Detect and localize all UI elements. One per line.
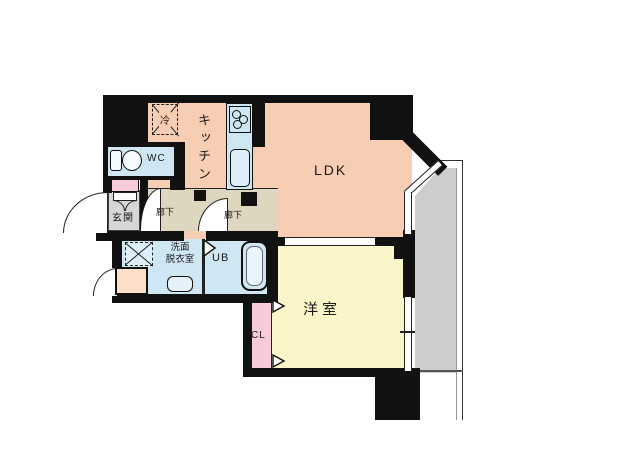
wall bbox=[112, 231, 184, 241]
washroom-label-line2: 脱衣室 bbox=[154, 254, 206, 266]
sliding-door-opening bbox=[285, 237, 375, 246]
washbasin-icon bbox=[167, 276, 193, 292]
window-tick bbox=[400, 331, 415, 333]
western-room-label: 洋室 bbox=[303, 298, 341, 319]
shoe-cabinet bbox=[111, 179, 139, 192]
hallway-label: 廊下 bbox=[156, 205, 174, 218]
wall bbox=[103, 95, 148, 147]
stove-icon bbox=[229, 106, 251, 133]
ldk-window bbox=[404, 192, 412, 234]
toilet-bowl-icon bbox=[122, 150, 142, 171]
washroom-label-line1: 洗面 bbox=[154, 242, 206, 254]
folding-door-icon bbox=[272, 299, 286, 313]
bathtub-icon bbox=[241, 241, 268, 291]
bathtub-inner bbox=[246, 246, 263, 286]
hallway-label: 廊下 bbox=[224, 208, 242, 221]
wall-door-stub bbox=[241, 192, 257, 206]
washroom-label: 洗面 脱衣室 bbox=[154, 242, 206, 266]
refrigerator-box: 冷 bbox=[152, 104, 178, 135]
closet-label: CL bbox=[251, 330, 266, 341]
wall bbox=[375, 237, 404, 246]
storage-box bbox=[115, 267, 148, 295]
refrigerator-label-wrap: 冷 bbox=[153, 105, 177, 134]
balcony-railing bbox=[438, 160, 463, 420]
unit-bath-label: UB bbox=[212, 252, 229, 264]
entrance-label: 玄関 bbox=[112, 209, 134, 224]
sink-icon bbox=[230, 149, 250, 187]
floor-plan: 冷 LDK キッチン WC 玄関 廊下 廊下 洗面 脱衣室 bbox=[0, 0, 640, 452]
wc-label: WC bbox=[147, 153, 166, 164]
toilet-tank-icon bbox=[110, 150, 122, 171]
washing-machine-pan-icon bbox=[125, 242, 153, 266]
wall bbox=[375, 373, 420, 420]
folding-door-icon bbox=[272, 354, 286, 368]
front-door-arc bbox=[63, 192, 108, 233]
x-line bbox=[126, 243, 154, 266]
western-room-window bbox=[404, 297, 412, 371]
wall bbox=[112, 237, 122, 268]
wall bbox=[112, 294, 278, 303]
burner-icon bbox=[233, 120, 242, 129]
kitchen-label: キッチン bbox=[197, 113, 213, 209]
refrigerator-label: 冷 bbox=[159, 112, 171, 127]
wall bbox=[403, 230, 415, 298]
balcony-bottom-line bbox=[415, 370, 463, 372]
wall bbox=[253, 95, 265, 147]
ldk-label: LDK bbox=[314, 162, 347, 178]
